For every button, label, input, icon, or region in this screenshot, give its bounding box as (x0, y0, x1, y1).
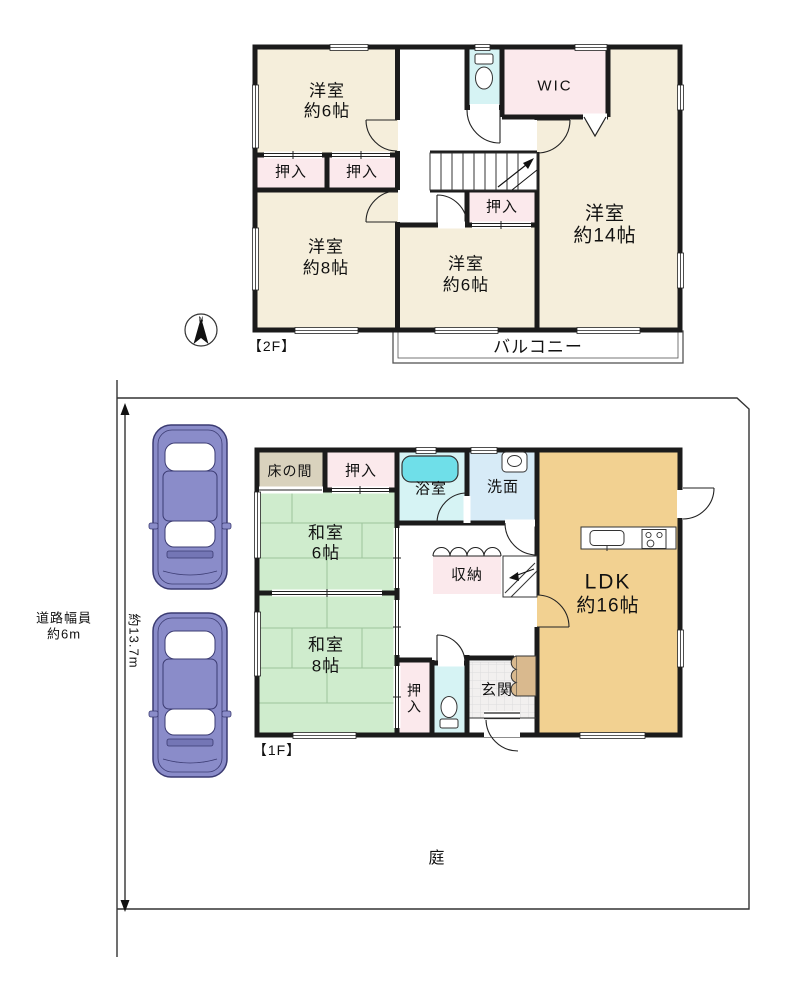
stove-icon (642, 530, 666, 549)
room-2f-yoshitsu8-label: 洋室 (308, 239, 344, 256)
floorplan-drawing (0, 0, 785, 1000)
ldk-size: 約16帖 (576, 597, 639, 616)
site-depth-label: 約13.7m (128, 613, 141, 668)
room-1f-washitsu8-size: 8帖 (312, 658, 340, 675)
wic-label: WIC (537, 79, 572, 94)
compass-north-label: N (198, 317, 203, 324)
kitchen-sink-icon (590, 531, 624, 546)
toilet-2f-icon (475, 54, 493, 89)
closet-2f-c-label: 押入 (486, 200, 518, 215)
room-1f-washitsu6-label: 和室 (308, 525, 344, 542)
tokonoma-label: 床の間 (268, 464, 313, 478)
road-width-label-line2: 約6m (47, 628, 81, 641)
shoe-cabinet (511, 656, 536, 696)
room-2f-yoshitsu14-size: 約14帖 (573, 227, 636, 246)
garden-label: 庭 (428, 851, 445, 867)
room-2f-yoshitsu6-top-size: 約6帖 (304, 103, 350, 120)
ldk-label: LDK (585, 572, 632, 593)
room-1f-washitsu8-label: 和室 (308, 637, 344, 654)
storage-label: 収納 (451, 568, 483, 583)
room-2f-yoshitsu6-mid-label: 洋室 (448, 256, 484, 273)
entrance-label: 玄関 (481, 683, 513, 698)
bath-label: 浴室 (415, 482, 447, 497)
storage-door-arcs (433, 548, 501, 557)
closet-1f-bottom-label: 押入 (407, 683, 421, 715)
bathtub-icon (402, 456, 458, 482)
car-icon (149, 613, 231, 777)
closet-1f-top-label: 押入 (345, 464, 377, 479)
room-2f-yoshitsu6-mid-size: 約6帖 (443, 277, 489, 294)
room-2f-yoshitsu14 (608, 47, 680, 117)
room-1f-washitsu6-size: 6帖 (312, 545, 340, 562)
room-2f-yoshitsu8-size: 約8帖 (303, 260, 349, 277)
balcony-label: バルコニー (493, 339, 583, 356)
closet-2f-b-label: 押入 (346, 165, 378, 180)
floor1-label: 【1F】 (253, 743, 301, 757)
floor1-plan (255, 448, 715, 752)
road-width-label-line1: 道路幅員 (36, 612, 92, 625)
washroom-label: 洗面 (487, 480, 519, 495)
sink-icon (502, 452, 527, 472)
floorplan-page: 洋室 約6帖 押入 押入 WIC 押入 洋室 約14帖 洋室 約8帖 洋室 約6… (0, 0, 785, 1000)
kitchen-counter (581, 527, 676, 551)
stairs-1f (503, 556, 537, 597)
floor2-label: 【2F】 (248, 339, 296, 353)
toilet-1f-icon (440, 697, 458, 729)
car-icon (149, 425, 231, 589)
stairs-2f (430, 153, 537, 190)
room-2f-yoshitsu6-top-label: 洋室 (309, 83, 345, 100)
closet-2f-a-label: 押入 (275, 165, 307, 180)
entrance-door (484, 711, 520, 720)
room-2f-yoshitsu14-label: 洋室 (585, 205, 625, 224)
